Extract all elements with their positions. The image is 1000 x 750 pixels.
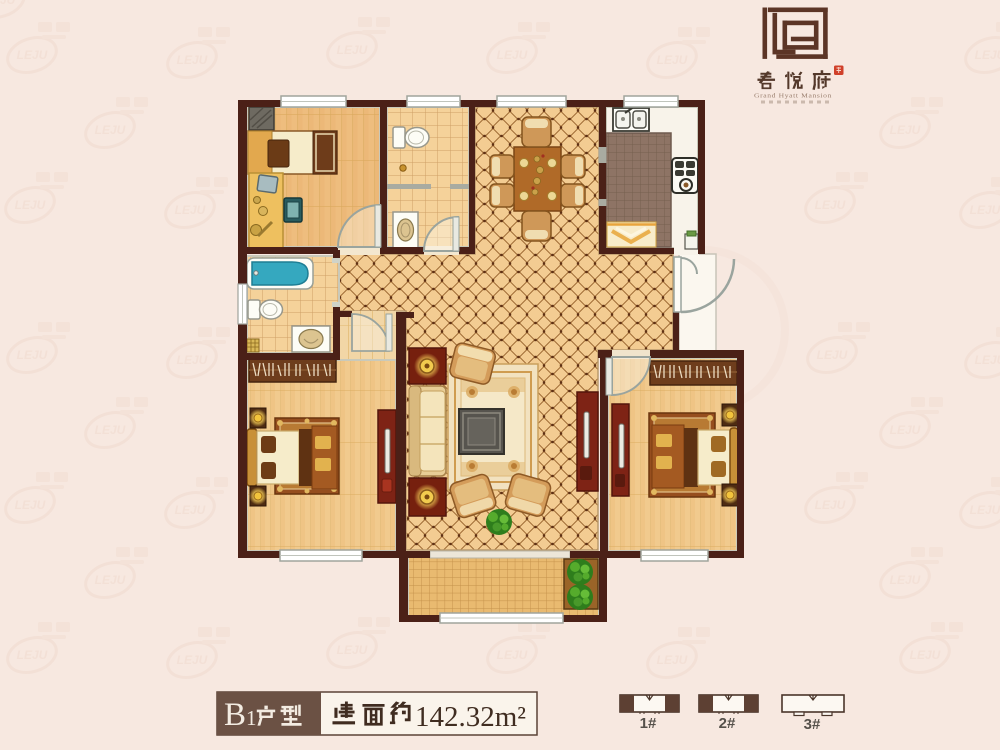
svg-text:3#: 3# [804, 716, 821, 733]
svg-text:Grand Hyatt Mansion: Grand Hyatt Mansion [754, 94, 832, 100]
svg-text:1#: 1# [640, 715, 657, 732]
svg-text:2#: 2# [719, 715, 736, 732]
svg-text:142.32m²: 142.32m² [415, 701, 526, 733]
svg-text:LEJU: LEJU [0, 0, 16, 7]
